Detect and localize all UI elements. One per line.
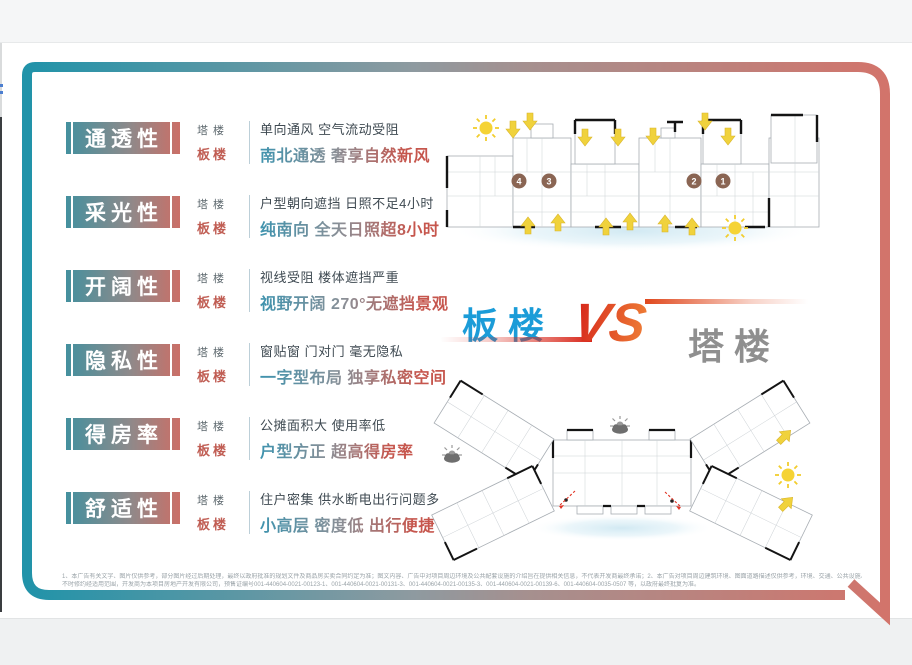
- plan-shadow: [530, 515, 714, 541]
- comparison-row-ventilation: 通透性 塔楼 板楼 单向通风 空气流动受阻 南北通透 奢享自然新风: [66, 122, 426, 196]
- slab-label: 板楼: [197, 144, 243, 163]
- slab-label: 板楼: [197, 514, 243, 533]
- category-badge: 采光性: [66, 196, 180, 228]
- badge-right-line: [170, 196, 172, 228]
- slab-description: 南北通透 奢享自然新风: [260, 142, 430, 166]
- comparison-texts: 窗贴窗 门对门 毫无隐私 一字型布局 独享私密空间: [260, 341, 446, 388]
- comparison-detail: 塔楼 板楼 住户密集 供水断电出行问题多 小高层 密度低 出行便捷: [197, 489, 440, 536]
- unit-number-badge: 2: [687, 174, 702, 189]
- building-type-labels: 塔楼 板楼: [197, 193, 243, 240]
- tower-label: 塔楼: [197, 418, 243, 434]
- comparison-texts: 公摊面积大 使用率低 户型方正 超高得房率: [260, 415, 413, 462]
- tower-wing-upper-left: [434, 381, 554, 482]
- tower-building-floorplan: [425, 378, 820, 576]
- tower-label: 塔楼: [197, 196, 243, 212]
- tower-label: 塔楼: [197, 122, 243, 138]
- tower-wing-lower-right: [690, 466, 813, 560]
- tower-wing-upper-right: [690, 381, 810, 482]
- disclaimer-line-1: 1、本广告有关文字、图片仅供参考，部分图片经过后期处理，最终以政府批准的规划文件…: [62, 573, 862, 581]
- divider-line: [249, 343, 250, 386]
- building-type-labels: 塔楼 板楼: [197, 415, 243, 462]
- unit-number-badge: 3: [542, 174, 557, 189]
- category-title: 隐私性: [73, 344, 170, 376]
- versus-right-swoosh-line: [645, 299, 808, 304]
- comparison-row-privacy: 隐私性 塔楼 板楼 窗贴窗 门对门 毫无隐私 一字型布局 独享私密空间: [66, 344, 426, 418]
- cloud-blocked-sun-icon: [610, 416, 630, 434]
- comparison-texts: 户型朝向遮挡 日照不足4小时 纯南向 全天日照超8小时: [260, 193, 439, 240]
- tower-description: 住户密集 供水断电出行问题多: [260, 489, 440, 508]
- tower-description: 单向通风 空气流动受阻: [260, 119, 430, 138]
- category-badge: 隐私性: [66, 344, 180, 376]
- versus-tower-title: 塔楼: [688, 318, 780, 370]
- comparison-row-efficiency: 得房率 塔楼 板楼 公摊面积大 使用率低 户型方正 超高得房率: [66, 418, 426, 492]
- slab-walls-outline: [447, 115, 819, 227]
- unit-number: 1: [720, 177, 725, 187]
- category-badge: 舒适性: [66, 492, 180, 524]
- versus-left-swoosh-line: [440, 337, 592, 342]
- divider-line: [249, 417, 250, 460]
- slab-description: 户型方正 超高得房率: [260, 438, 413, 462]
- versus-vs-mark: VS: [571, 285, 657, 361]
- comparison-detail: 塔楼 板楼 窗贴窗 门对门 毫无隐私 一字型布局 独享私密空间: [197, 341, 446, 388]
- tower-description: 视线受阻 楼体遮挡严重: [260, 267, 449, 286]
- tower-wing-lower-left: [432, 466, 555, 560]
- disclaimer-line-2: 不时修约经适用范围，开发商为本项目房地产开发有限公司，预售证编号001-4406…: [62, 581, 862, 589]
- category-title: 得房率: [73, 418, 170, 450]
- slab-description: 视野开阔 270°无遮挡景观: [260, 290, 449, 314]
- slab-label: 板楼: [197, 292, 243, 311]
- divider-line: [249, 269, 250, 312]
- comparison-detail: 塔楼 板楼 户型朝向遮挡 日照不足4小时 纯南向 全天日照超8小时: [197, 193, 439, 240]
- divider-line: [249, 491, 250, 534]
- slab-label: 板楼: [197, 218, 243, 237]
- slab-description: 一字型布局 独享私密空间: [260, 364, 446, 388]
- badge-right-line: [170, 344, 172, 376]
- legal-disclaimer: 1、本广告有关文字、图片仅供参考，部分图片经过后期处理，最终以政府批准的规划文件…: [62, 573, 862, 589]
- vs-text: VS: [571, 293, 650, 353]
- sun-icon: [775, 462, 801, 488]
- building-type-labels: 塔楼 板楼: [197, 267, 243, 314]
- tower-description: 户型朝向遮挡 日照不足4小时: [260, 193, 439, 212]
- badge-right-line: [170, 270, 172, 302]
- comparison-list: 通透性 塔楼 板楼 单向通风 空气流动受阻 南北通透 奢享自然新风 采光性 塔楼…: [66, 122, 426, 566]
- building-type-labels: 塔楼 板楼: [197, 119, 243, 166]
- comparison-row-lighting: 采光性 塔楼 板楼 户型朝向遮挡 日照不足4小时 纯南向 全天日照超8小时: [66, 196, 426, 270]
- comparison-detail: 塔楼 板楼 视线受阻 楼体遮挡严重 视野开阔 270°无遮挡景观: [197, 267, 449, 314]
- unit-number: 2: [691, 177, 696, 187]
- sun-icon: [473, 115, 499, 141]
- category-badge: 得房率: [66, 418, 180, 450]
- unit-number: 4: [516, 177, 521, 187]
- tower-label: 塔楼: [197, 270, 243, 286]
- divider-line: [249, 195, 250, 238]
- tower-label: 塔楼: [197, 492, 243, 508]
- unit-number-badge: 1: [716, 174, 731, 189]
- tower-label: 塔楼: [197, 344, 243, 360]
- tower-description: 窗贴窗 门对门 毫无隐私: [260, 341, 446, 360]
- comparison-row-comfort: 舒适性 塔楼 板楼 住户密集 供水断电出行问题多 小高层 密度低 出行便捷: [66, 492, 426, 566]
- badge-right-line: [170, 418, 172, 450]
- badge-right-line: [170, 122, 172, 154]
- category-title: 开阔性: [73, 270, 170, 302]
- badge-right-line: [170, 492, 172, 524]
- comparison-row-openness: 开阔性 塔楼 板楼 视线受阻 楼体遮挡严重 视野开阔 270°无遮挡景观: [66, 270, 426, 344]
- slab-description: 小高层 密度低 出行便捷: [260, 512, 440, 536]
- building-type-labels: 塔楼 板楼: [197, 341, 243, 388]
- tower-description: 公摊面积大 使用率低: [260, 415, 413, 434]
- category-title: 通透性: [73, 122, 170, 154]
- slab-label: 板楼: [197, 366, 243, 385]
- category-badge: 通透性: [66, 122, 180, 154]
- comparison-detail: 塔楼 板楼 公摊面积大 使用率低 户型方正 超高得房率: [197, 415, 413, 462]
- slab-label: 板楼: [197, 440, 243, 459]
- building-type-labels: 塔楼 板楼: [197, 489, 243, 536]
- category-title: 采光性: [73, 196, 170, 228]
- cloud-blocked-sun-icon: [442, 445, 462, 463]
- unit-number-badge: 4: [512, 174, 527, 189]
- slab-building-floorplan: 4 3 2 1: [435, 100, 830, 260]
- comparison-texts: 视线受阻 楼体遮挡严重 视野开阔 270°无遮挡景观: [260, 267, 449, 314]
- comparison-detail: 塔楼 板楼 单向通风 空气流动受阻 南北通透 奢享自然新风: [197, 119, 430, 166]
- unit-number: 3: [546, 177, 551, 187]
- comparison-texts: 住户密集 供水断电出行问题多 小高层 密度低 出行便捷: [260, 489, 440, 536]
- slab-description: 纯南向 全天日照超8小时: [260, 216, 439, 240]
- sun-icon: [722, 215, 748, 241]
- category-title: 舒适性: [73, 492, 170, 524]
- category-badge: 开阔性: [66, 270, 180, 302]
- comparison-texts: 单向通风 空气流动受阻 南北通透 奢享自然新风: [260, 119, 430, 166]
- divider-line: [249, 121, 250, 164]
